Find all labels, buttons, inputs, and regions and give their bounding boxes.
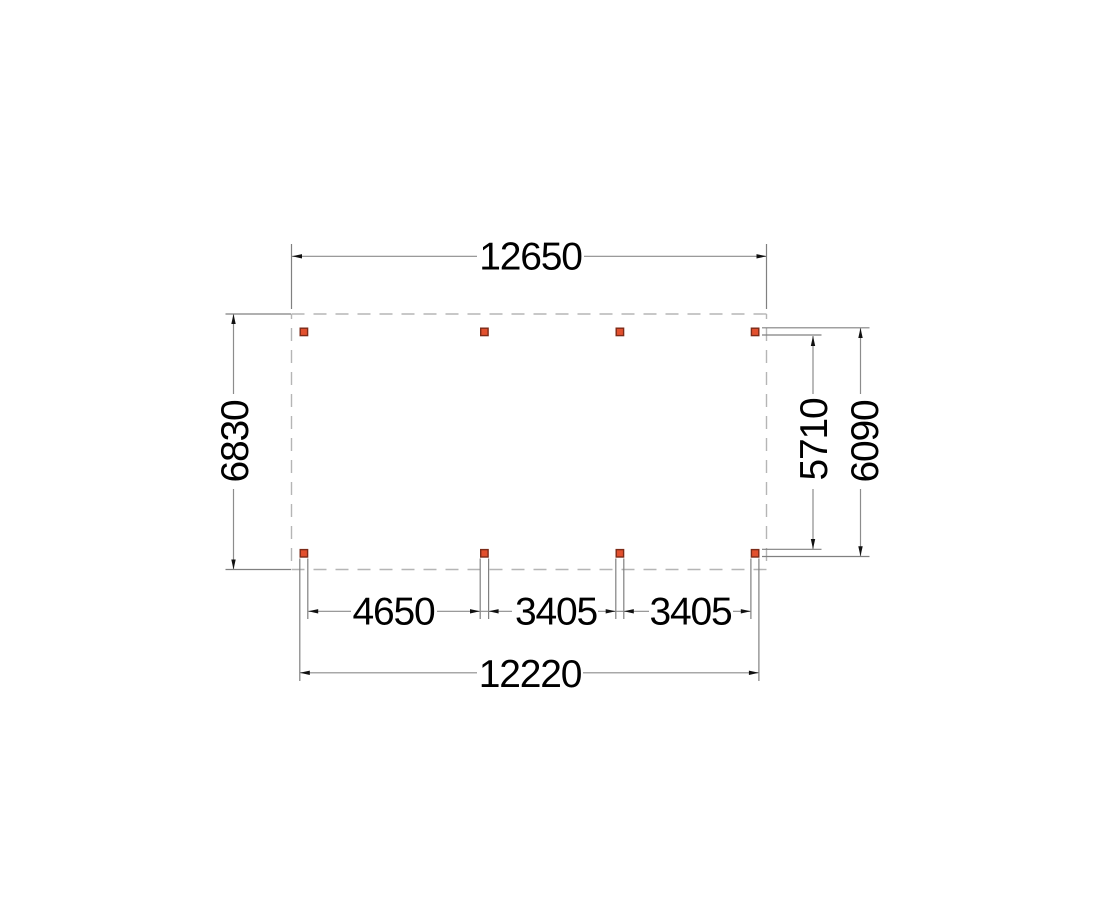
- svg-text:12650: 12650: [479, 236, 582, 279]
- svg-text:5710: 5710: [793, 398, 836, 480]
- svg-text:6830: 6830: [214, 400, 257, 482]
- svg-text:4650: 4650: [353, 591, 435, 634]
- svg-text:6090: 6090: [844, 400, 887, 482]
- svg-text:12220: 12220: [479, 653, 582, 696]
- svg-text:3405: 3405: [650, 591, 732, 634]
- svg-text:3405: 3405: [515, 591, 597, 634]
